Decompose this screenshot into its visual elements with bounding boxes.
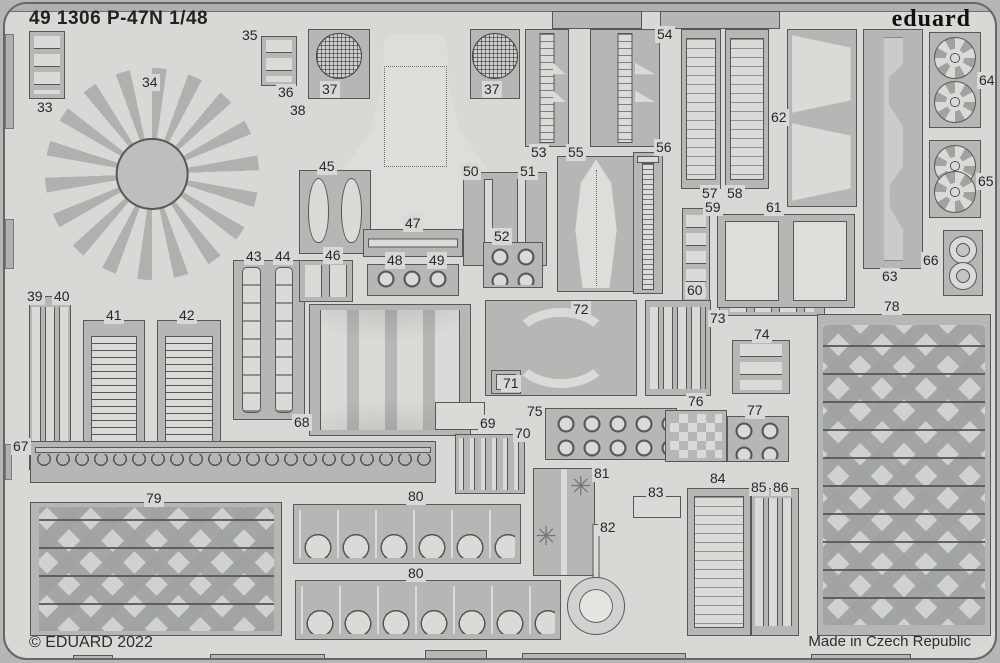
- part-number-65: 65: [976, 173, 996, 190]
- part-number-46: 46: [323, 247, 343, 264]
- panel-part-74: [732, 340, 790, 394]
- part-number-68: 68: [292, 414, 312, 431]
- part-number-47: 47: [403, 215, 423, 232]
- panel-part-85-86: [751, 488, 799, 636]
- part-number-66: 66: [921, 252, 941, 269]
- panel-part-33: [29, 31, 65, 99]
- panel-part-52: [483, 242, 543, 288]
- part-number-81: 81: [592, 465, 612, 482]
- part-number-62: 62: [769, 109, 789, 126]
- part-number-41: 41: [104, 307, 124, 324]
- panel-part-63: [863, 29, 923, 269]
- part-number-79: 79: [144, 490, 164, 507]
- part-number-40: 40: [52, 288, 72, 305]
- part-number-51: 51: [518, 163, 538, 180]
- part-number-54: 54: [655, 26, 675, 43]
- panel-part-75: [545, 408, 677, 460]
- panel-part-57: [681, 29, 721, 189]
- part-number-38: 38: [288, 102, 308, 119]
- panel-part-70: [455, 434, 525, 494]
- panel-part-43-44: [233, 260, 305, 420]
- part-number-33: 33: [35, 99, 55, 116]
- panel-part-62: [787, 29, 857, 207]
- part-number-61: 61: [764, 199, 784, 216]
- part-number-72: 72: [571, 301, 591, 318]
- part-number-80: 80: [406, 488, 426, 505]
- panel-part-frame-tab: [811, 654, 911, 660]
- part-number-64: 64: [977, 72, 997, 89]
- part-number-53: 53: [529, 144, 549, 161]
- part-number-36: 36: [276, 84, 296, 101]
- panel-part-64: [929, 32, 981, 128]
- part-number-83: 83: [646, 484, 666, 501]
- panel-part-47: [363, 229, 463, 257]
- panel-part-frame-tab: [522, 653, 686, 660]
- panel-part-66: [943, 230, 983, 296]
- part-number-52: 52: [492, 228, 512, 245]
- panel-part-67: [30, 441, 436, 483]
- part-number-70: 70: [513, 425, 533, 442]
- photoetch-fret: 49 1306 P-47N 1/48 eduard © EDUARD 2022 …: [3, 2, 997, 660]
- panel-part-65: [929, 140, 981, 218]
- part-number-56: 56: [654, 139, 674, 156]
- part-number-67: 67: [11, 438, 31, 455]
- panel-part-80: [295, 580, 561, 640]
- part-number-76: 76: [686, 393, 706, 410]
- panel-part-54: [590, 29, 660, 147]
- part-number-63: 63: [880, 268, 900, 285]
- part-number-85: 85: [749, 479, 769, 496]
- panel-part-frame-tab: [210, 654, 325, 660]
- part-number-42: 42: [177, 307, 197, 324]
- part-number-75: 75: [525, 403, 545, 420]
- panel-part-58: [725, 29, 769, 189]
- part-number-43: 43: [244, 248, 264, 265]
- panel-part-56: [633, 152, 663, 294]
- part-number-37: 37: [482, 81, 502, 98]
- panel-part-78: [817, 314, 991, 636]
- panel-part-79: [30, 502, 282, 636]
- part-number-37: 37: [320, 81, 340, 98]
- part-number-48: 48: [385, 252, 405, 269]
- copyright-text: © EDUARD 2022: [29, 634, 153, 652]
- sheet-title: 49 1306 P-47N 1/48: [29, 8, 208, 30]
- panel-part-frame-edge: [5, 219, 14, 269]
- panel-part-61: [717, 214, 855, 308]
- panel-part-frame-tab: [552, 11, 642, 29]
- panel-part-frame-tab: [660, 11, 780, 29]
- panel-part-45: [299, 170, 371, 254]
- part-number-86: 86: [771, 479, 791, 496]
- part-number-39: 39: [25, 288, 45, 305]
- panel-part-frame-tab: [73, 655, 113, 660]
- part-number-71: 71: [501, 375, 521, 392]
- panel-part-35-36: [261, 36, 297, 86]
- photoetch-sheet-photo: 49 1306 P-47N 1/48 eduard © EDUARD 2022 …: [0, 0, 1000, 663]
- panel-part-76: [665, 410, 727, 462]
- panel-part-34: [45, 68, 259, 280]
- part-number-73: 73: [708, 310, 728, 327]
- part-number-34: 34: [140, 74, 160, 91]
- part-number-78: 78: [882, 298, 902, 315]
- panel-part-82: [565, 524, 627, 636]
- part-number-44: 44: [273, 248, 293, 265]
- panel-part-80: [293, 504, 521, 564]
- part-number-74: 74: [752, 326, 772, 343]
- part-number-45: 45: [317, 158, 337, 175]
- panel-part-46: [299, 260, 353, 302]
- part-number-55: 55: [566, 144, 586, 161]
- panel-part-frame-tab: [425, 650, 487, 660]
- panel-part-73: [645, 300, 711, 396]
- part-number-49: 49: [427, 252, 447, 269]
- panel-part-frame-edge: [5, 34, 14, 129]
- part-number-80: 80: [406, 565, 426, 582]
- part-number-35: 35: [240, 27, 260, 44]
- part-number-69: 69: [478, 415, 498, 432]
- part-number-59: 59: [703, 199, 723, 216]
- part-number-82: 82: [598, 519, 618, 536]
- part-number-77: 77: [745, 402, 765, 419]
- panel-part-53: [525, 29, 569, 147]
- part-number-50: 50: [461, 163, 481, 180]
- panel-part-55: [557, 156, 635, 292]
- panel-part-77: [727, 416, 789, 462]
- part-number-84: 84: [708, 470, 728, 487]
- panel-part-84: [687, 488, 751, 636]
- part-number-58: 58: [725, 185, 745, 202]
- part-number-60: 60: [685, 282, 705, 299]
